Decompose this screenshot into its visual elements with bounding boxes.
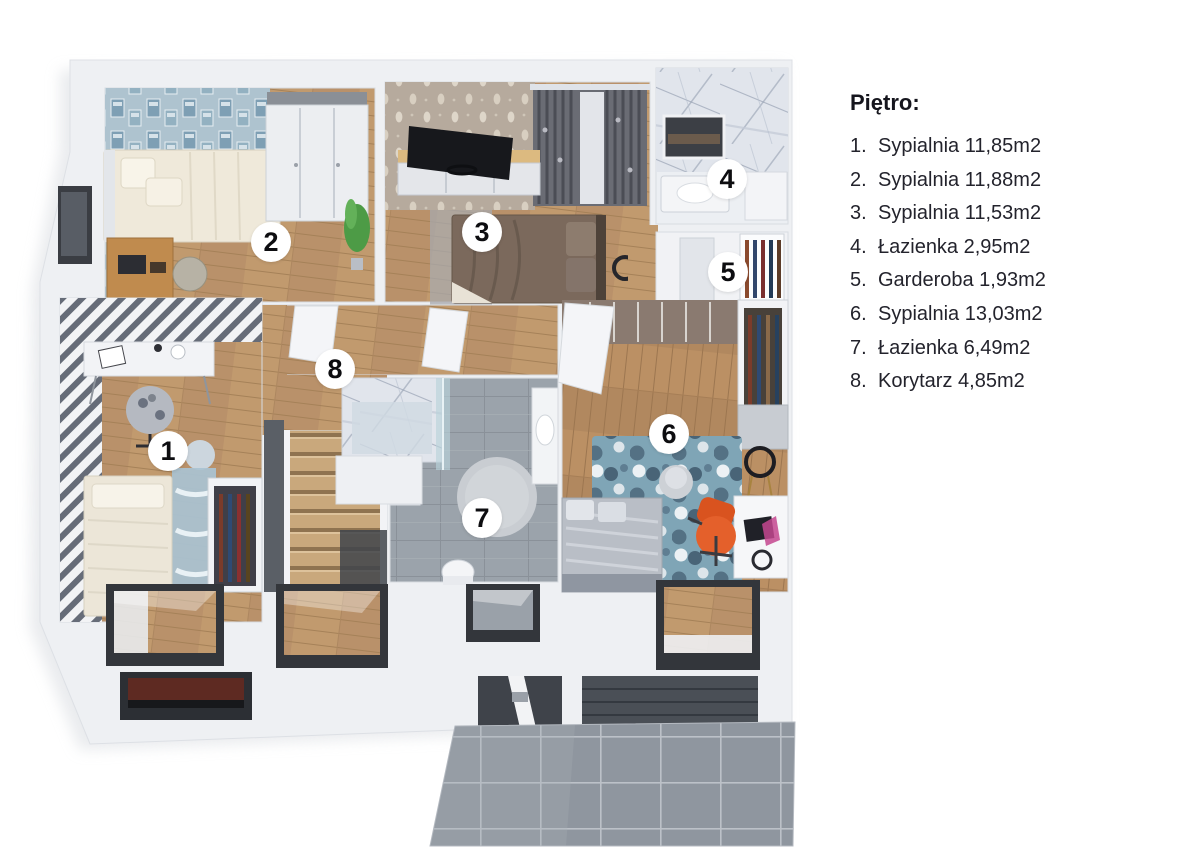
wardrobe-room6 [738, 300, 788, 449]
skylight-3 [120, 672, 252, 720]
stairwell-void [264, 420, 284, 592]
curtains-room3 [530, 84, 650, 206]
wardrobe-room1 [208, 478, 262, 592]
skylight-2 [276, 584, 388, 668]
hall-stub [628, 225, 658, 307]
room-4-bathroom [656, 68, 788, 224]
legend-item-text: Łazienka 2,95m2 [878, 231, 1170, 265]
floorplan-stage: 1 2 3 4 5 6 7 8 Piętro: 1. Sypialnia 11,… [0, 0, 1200, 848]
room-legend: Piętro: 1. Sypialnia 11,85m2 2. Sypialni… [850, 90, 1170, 399]
pouf-room1 [185, 440, 215, 470]
page: { "legend": { "title": "Piętro:", "items… [0, 0, 1200, 848]
legend-item-number: 7. [850, 332, 878, 366]
skylight-1 [106, 584, 224, 666]
marker-room-1: 1 [148, 431, 188, 471]
legend-item-5: 5. Garderoba 1,93m2 [850, 264, 1170, 298]
skylight-5 [656, 580, 760, 670]
marker-room-3: 3 [462, 212, 502, 252]
marker-room-5: 5 [708, 252, 748, 292]
marker-room-4: 4 [707, 159, 747, 199]
legend-item-6: 6. Sypialnia 13,03m2 [850, 298, 1170, 332]
legend-item-1: 1. Sypialnia 11,85m2 [850, 130, 1170, 164]
legend-item-number: 8. [850, 365, 878, 399]
mirror-room4 [664, 116, 724, 158]
marker-room-6: 6 [649, 414, 689, 454]
marker-room-8: 8 [315, 349, 355, 389]
legend-item-text: Sypialnia 11,53m2 [878, 197, 1170, 231]
legend-item-7: 7. Łazienka 6,49m2 [850, 332, 1170, 366]
room-3-bedroom [385, 82, 650, 305]
legend-item-3: 3. Sypialnia 11,53m2 [850, 197, 1170, 231]
toilet-room7 [442, 560, 474, 585]
skylight-4 [466, 584, 540, 642]
legend-item-text: Garderoba 1,93m2 [878, 264, 1170, 298]
legend-item-number: 2. [850, 164, 878, 198]
garage-panel [582, 676, 758, 728]
marker-room-2: 2 [251, 222, 291, 262]
legend-list: 1. Sypialnia 11,85m2 2. Sypialnia 11,88m… [850, 130, 1170, 399]
legend-item-number: 3. [850, 197, 878, 231]
legend-item-text: Sypialnia 13,03m2 [878, 298, 1170, 332]
legend-item-text: Sypialnia 11,85m2 [878, 130, 1170, 164]
legend-item-number: 5. [850, 264, 878, 298]
bed-room6 [562, 498, 662, 592]
legend-item-text: Łazienka 6,49m2 [878, 332, 1170, 366]
bed-room2 [104, 150, 280, 242]
legend-item-number: 6. [850, 298, 878, 332]
sink-room7 [532, 388, 558, 484]
legend-item-number: 4. [850, 231, 878, 265]
entry-door [478, 676, 562, 728]
room-2-bedroom [104, 88, 375, 302]
marker-room-7: 7 [462, 498, 502, 538]
legend-item-text: Sypialnia 11,88m2 [878, 164, 1170, 198]
terrace [430, 722, 795, 846]
legend-item-text: Korytarz 4,85m2 [878, 365, 1170, 399]
legend-item-8: 8. Korytarz 4,85m2 [850, 365, 1170, 399]
legend-item-number: 1. [850, 130, 878, 164]
desk-room6 [734, 496, 788, 578]
legend-item-4: 4. Łazienka 2,95m2 [850, 231, 1170, 265]
legend-title: Piętro: [850, 90, 1170, 116]
legend-item-2: 2. Sypialnia 11,88m2 [850, 164, 1170, 198]
bed-room3 [430, 210, 606, 305]
